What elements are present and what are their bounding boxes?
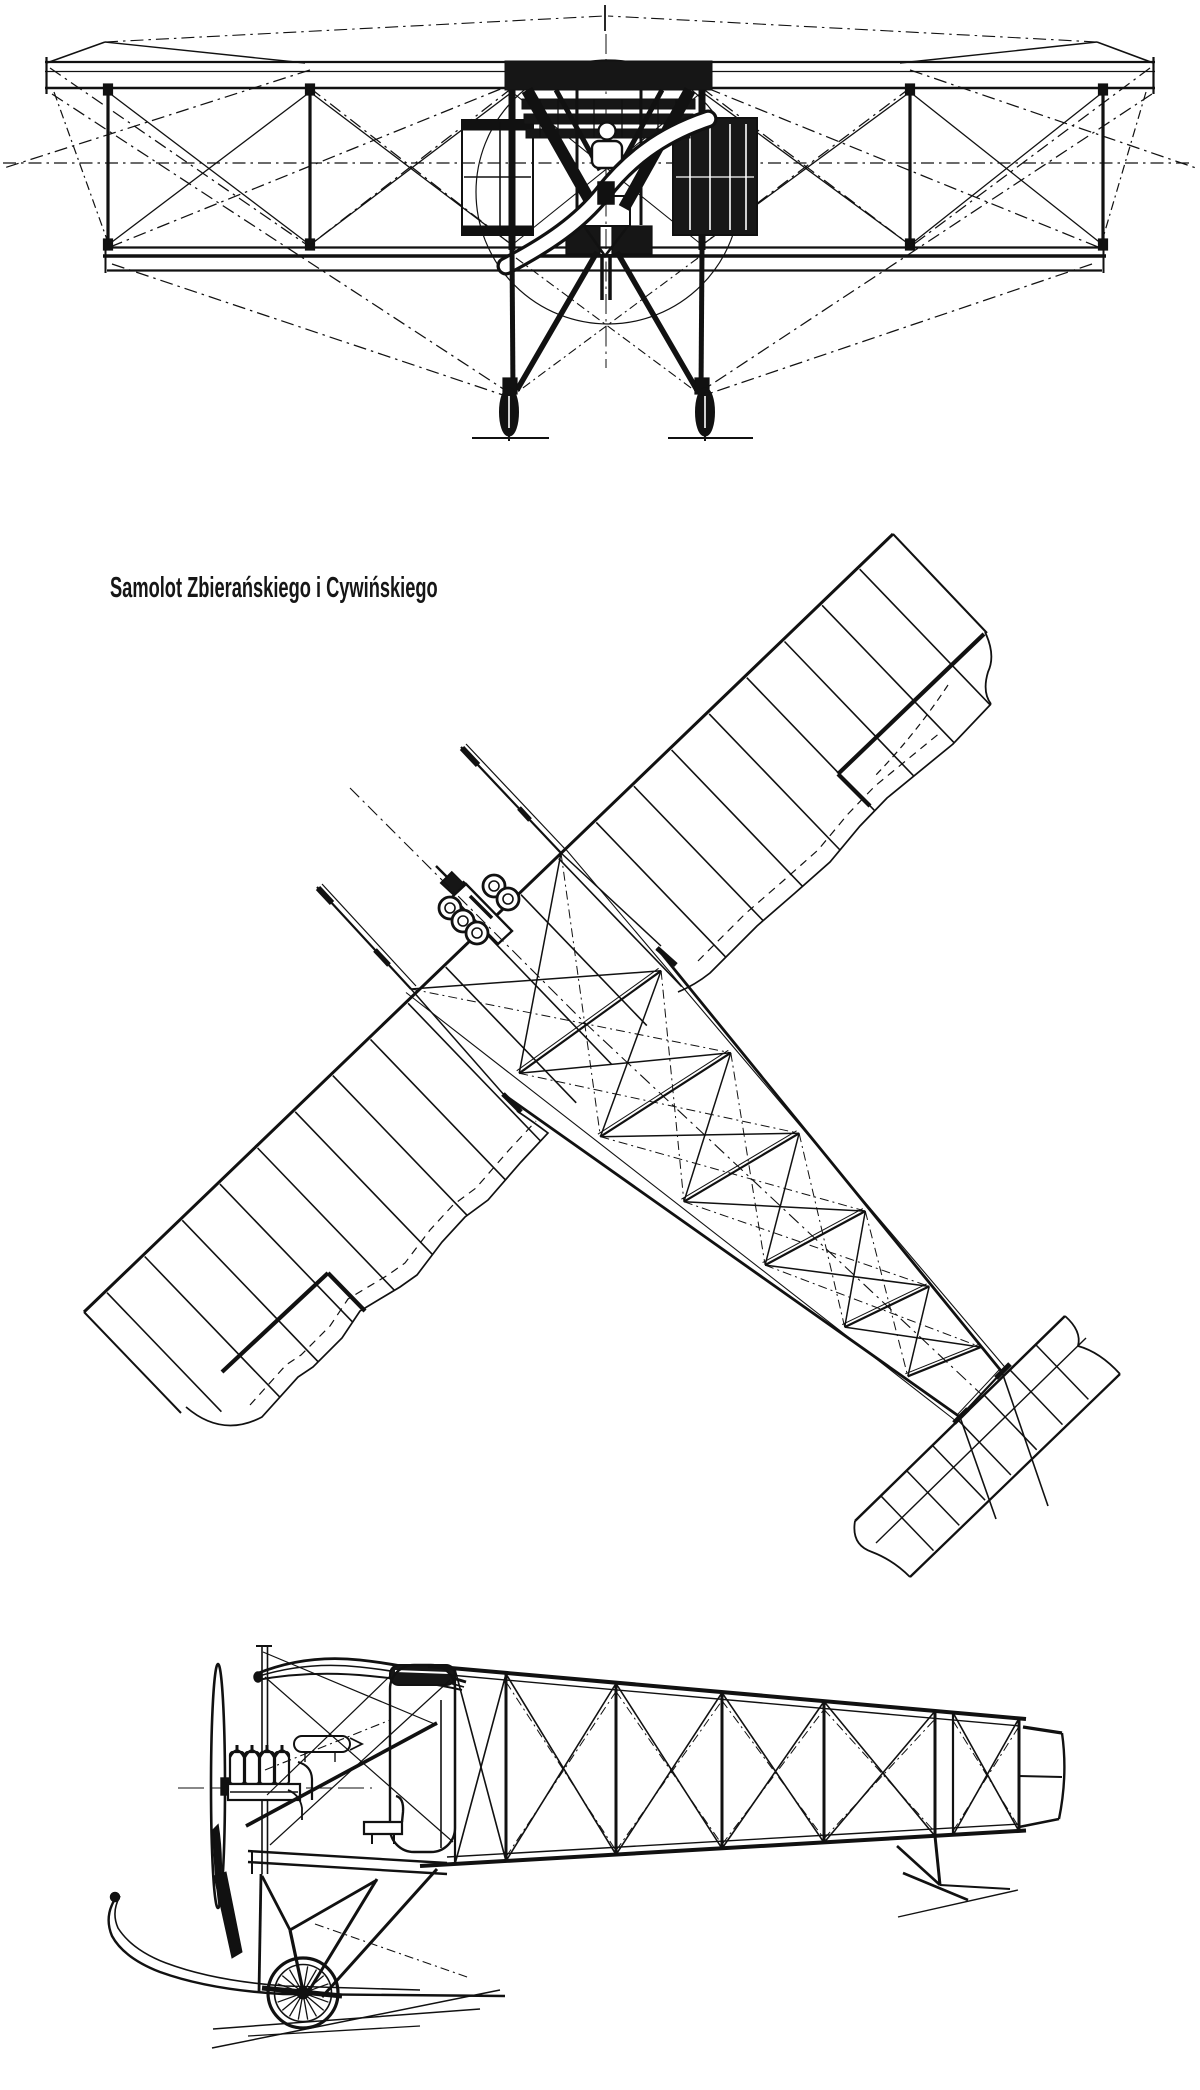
svg-text:Samolot Zbierańskiego i Cywińs: Samolot Zbierańskiego i Cywińskiego — [110, 572, 438, 604]
